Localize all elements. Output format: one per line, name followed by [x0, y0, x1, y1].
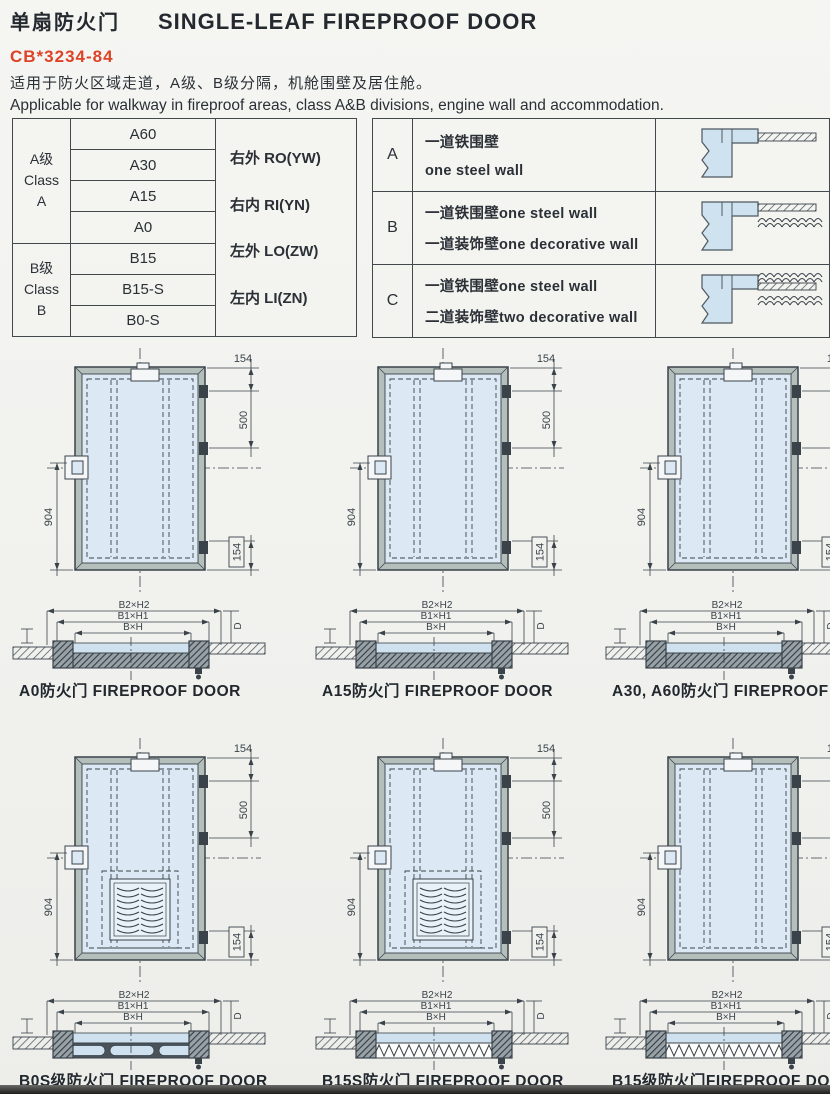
section-dim-depth: D [826, 622, 830, 629]
drawing-cell-b15: 154500154904 B2×H2B1×H1B×HD B15级防火门FIREP… [598, 735, 830, 1094]
section-dim-middle: B1×H1 [711, 611, 742, 622]
door-front-view: 154500154904 [598, 345, 830, 597]
door-section-drawing: B2×H2B1×H1B×HD [600, 599, 830, 681]
wall-type-desc: 一道铁围壁one steel wall 一道装饰壁one decorative … [413, 192, 656, 265]
dim-handle-height: 904 [43, 508, 55, 526]
dim-handle-height: 904 [346, 898, 358, 916]
frame-block-left [356, 1031, 376, 1058]
wall-section-diagram [660, 194, 826, 258]
door-closer-icon [724, 363, 752, 381]
door-section-view: B2×H2B1×H1B×HD [310, 989, 590, 1071]
door-section-view: B2×H2B1×H1B×HD [310, 599, 590, 681]
door-louver [102, 871, 178, 948]
wall-stub-left [13, 647, 53, 659]
door-section-view: B2×H2B1×H1B×HD [7, 989, 287, 1071]
door-front-drawing: 154500154904 [598, 735, 830, 987]
door-front-view: 154500154904 [308, 345, 593, 597]
wall-section-diagram [660, 267, 826, 331]
drawing-caption: A15防火门 FIREPROOF DOOR [308, 679, 608, 701]
orientation-option: 右外 RO(YW) [230, 147, 356, 168]
dim-hinge-spacing: 500 [238, 411, 250, 429]
frame-block-left [53, 641, 73, 668]
door-section-view: B2×H2B1×H1B×HD [7, 599, 287, 681]
dim-handle-height: 904 [346, 508, 358, 526]
section-dim-inner: B×H [123, 622, 143, 633]
door-handle-icon [65, 846, 88, 869]
wall-type-key: A [373, 119, 413, 192]
orientation-option: 左内 LI(ZN) [230, 287, 356, 308]
section-dim-outer: B2×H2 [712, 600, 743, 611]
section-dim-inner: B×H [716, 1012, 736, 1023]
wall-diagram-a [656, 119, 830, 192]
wall-config-table: A 一道铁围壁 one steel wall B 一道铁围壁one steel … [372, 118, 830, 338]
frame-block-left [646, 1031, 666, 1058]
dim-bottom-offset: 154 [535, 543, 547, 561]
catalog-page: 单扇防火门 SINGLE-LEAF FIREPROOF DOOR CB*3234… [0, 0, 830, 1094]
dim-head-offset: 154 [234, 353, 252, 365]
door-section-drawing: B2×H2B1×H1B×HD [600, 989, 830, 1071]
section-dim-outer: B2×H2 [422, 990, 453, 1001]
wall-diagram-c [656, 265, 830, 338]
frame-profile [702, 202, 758, 250]
wall-section-diagram [660, 121, 826, 185]
page-title-en: SINGLE-LEAF FIREPROOF DOOR [158, 9, 537, 35]
section-dim-depth: D [233, 622, 244, 629]
door-leaf [385, 374, 501, 563]
door-class-table: A级 Class A A60 右外 RO(YW) 右内 RI(YN) 左外 LO… [12, 118, 357, 337]
door-section-drawing: B2×H2B1×H1B×HD [310, 599, 590, 681]
section-dim-depth: D [536, 1012, 547, 1019]
door-handle-icon [368, 456, 391, 479]
section-dim-depth: D [233, 1012, 244, 1019]
frame-profile [702, 129, 758, 177]
dim-head-offset: 154 [537, 743, 555, 755]
class-b-group-label: B级 Class B [13, 243, 71, 336]
dim-bottom-offset: 154 [232, 933, 244, 951]
section-dim-middle: B1×H1 [118, 611, 149, 622]
door-leaf [675, 764, 791, 953]
page-title-cn: 单扇防火门 [10, 6, 120, 35]
door-section-view: B2×H2B1×H1B×HD [600, 599, 830, 681]
section-dim-outer: B2×H2 [712, 990, 743, 1001]
frame-block-right [782, 641, 802, 668]
model-cell: B0-S [71, 305, 216, 336]
door-front-drawing: 154500154904 [308, 735, 593, 987]
model-cell: B15 [71, 243, 216, 274]
frame-block-right [492, 641, 512, 668]
dim-hinge-spacing: 500 [541, 801, 553, 819]
dim-handle-height: 904 [43, 898, 55, 916]
dim-handle-height: 904 [636, 508, 648, 526]
drawing-cell-a30-a60: 154500154904 B2×H2B1×H1B×HD A30, A60防火门 … [598, 345, 830, 711]
section-dim-outer: B2×H2 [422, 600, 453, 611]
dim-bottom-offset: 154 [825, 933, 830, 951]
wall-stub-left [606, 1037, 646, 1049]
wall-stub-right [209, 643, 265, 654]
orientation-options-cell: 右外 RO(YW) 右内 RI(YN) 左外 LO(ZW) 左内 LI(ZN) [216, 119, 357, 337]
wall-type-key: C [373, 265, 413, 338]
scan-edge-strip [0, 1085, 830, 1094]
door-closer-icon [131, 753, 159, 771]
dim-bottom-offset: 154 [535, 933, 547, 951]
wall-stub-left [316, 647, 356, 659]
drawing-cell-b15s: 154500154904 B2×H2B1×H1B×HD B15S防火门 FIRE… [308, 735, 593, 1094]
door-front-view: 154500154904 [598, 735, 830, 987]
door-front-drawing: 154500154904 [5, 345, 290, 597]
wall-type-desc: 一道铁围壁 one steel wall [413, 119, 656, 192]
door-closer-icon [434, 753, 462, 771]
dim-hinge-spacing: 500 [541, 411, 553, 429]
section-dim-middle: B1×H1 [421, 1001, 452, 1012]
wall-stub-right [802, 643, 830, 654]
wall-stub-left [13, 1037, 53, 1049]
frame-block-left [356, 641, 376, 668]
drawing-caption: A0防火门 FIREPROOF DOOR [5, 679, 305, 701]
model-cell: A60 [71, 119, 216, 150]
dim-bottom-offset: 154 [825, 543, 830, 561]
section-dim-middle: B1×H1 [711, 1001, 742, 1012]
section-dim-middle: B1×H1 [118, 1001, 149, 1012]
dim-bottom-offset: 154 [232, 543, 244, 561]
wall-stub-right [512, 643, 568, 654]
drawing-cell-b0s: 154500154904 B2×H2B1×H1B×HD B0S级防火门 FIRE… [5, 735, 290, 1094]
door-closer-icon [434, 363, 462, 381]
subtitle-cn: 适用于防火区域走道，A级、B级分隔，机舱围壁及居住舱。 [10, 72, 828, 93]
page-header: 单扇防火门 SINGLE-LEAF FIREPROOF DOOR CB*3234… [10, 6, 828, 115]
section-dim-outer: B2×H2 [119, 600, 150, 611]
wall-stub-left [606, 647, 646, 659]
title-row: 单扇防火门 SINGLE-LEAF FIREPROOF DOOR [10, 6, 828, 35]
frame-block-right [782, 1031, 802, 1058]
wall-stub-right [802, 1033, 830, 1044]
wall-stub-right [512, 1033, 568, 1044]
section-dim-inner: B×H [123, 1012, 143, 1023]
drawing-caption: A30, A60防火门 FIREPROOF DOOR [598, 679, 830, 701]
section-dim-outer: B2×H2 [119, 990, 150, 1001]
door-handle-icon [368, 846, 391, 869]
door-section-view: B2×H2B1×H1B×HD [600, 989, 830, 1071]
class-a-group-label: A级 Class A [13, 119, 71, 244]
wall-diagram-b [656, 192, 830, 265]
door-section-drawing: B2×H2B1×H1B×HD [7, 989, 287, 1071]
model-cell: A0 [71, 212, 216, 243]
drawing-cell-a0: 154500154904 B2×H2B1×H1B×HD A0防火门 FIREPR… [5, 345, 290, 711]
orientation-option: 左外 LO(ZW) [230, 240, 356, 261]
door-front-drawing: 154500154904 [308, 345, 593, 597]
section-dim-middle: B1×H1 [421, 611, 452, 622]
drawing-cell-a15: 154500154904 B2×H2B1×H1B×HD A15防火门 FIREP… [308, 345, 593, 711]
door-front-drawing: 154500154904 [598, 345, 830, 597]
frame-block-right [189, 641, 209, 668]
door-front-drawing: 154500154904 [5, 735, 290, 987]
subtitle-en: Applicable for walkway in fireproof area… [10, 97, 828, 115]
standard-code: CB*3234-84 [10, 47, 828, 67]
model-cell: A15 [71, 181, 216, 212]
door-section-drawing: B2×H2B1×H1B×HD [7, 599, 287, 681]
section-dim-inner: B×H [426, 1012, 446, 1023]
section-dim-depth: D [826, 1012, 830, 1019]
door-leaf [82, 374, 198, 563]
dim-head-offset: 154 [234, 743, 252, 755]
wall-type-desc: 一道铁围壁one steel wall 二道装饰壁two decorative … [413, 265, 656, 338]
frame-block-right [492, 1031, 512, 1058]
door-handle-icon [658, 846, 681, 869]
frame-block-right [189, 1031, 209, 1058]
model-cell: A30 [71, 150, 216, 181]
door-section-drawing: B2×H2B1×H1B×HD [310, 989, 590, 1071]
frame-block-left [646, 641, 666, 668]
wall-stub-right [209, 1033, 265, 1044]
frame-profile [702, 275, 758, 323]
wall-type-key: B [373, 192, 413, 265]
section-dim-inner: B×H [716, 622, 736, 633]
door-handle-icon [65, 456, 88, 479]
wall-stub-left [316, 1037, 356, 1049]
door-louver [405, 871, 481, 948]
door-front-view: 154500154904 [5, 735, 290, 987]
door-closer-icon [724, 753, 752, 771]
frame-block-left [53, 1031, 73, 1058]
door-leaf [675, 374, 791, 563]
orientation-option: 右内 RI(YN) [230, 194, 356, 215]
dim-head-offset: 154 [537, 353, 555, 365]
dim-hinge-spacing: 500 [238, 801, 250, 819]
section-dim-depth: D [536, 622, 547, 629]
dim-handle-height: 904 [636, 898, 648, 916]
door-front-view: 154500154904 [5, 345, 290, 597]
door-handle-icon [658, 456, 681, 479]
door-closer-icon [131, 363, 159, 381]
section-dim-inner: B×H [426, 622, 446, 633]
door-front-view: 154500154904 [308, 735, 593, 987]
model-cell: B15-S [71, 274, 216, 305]
